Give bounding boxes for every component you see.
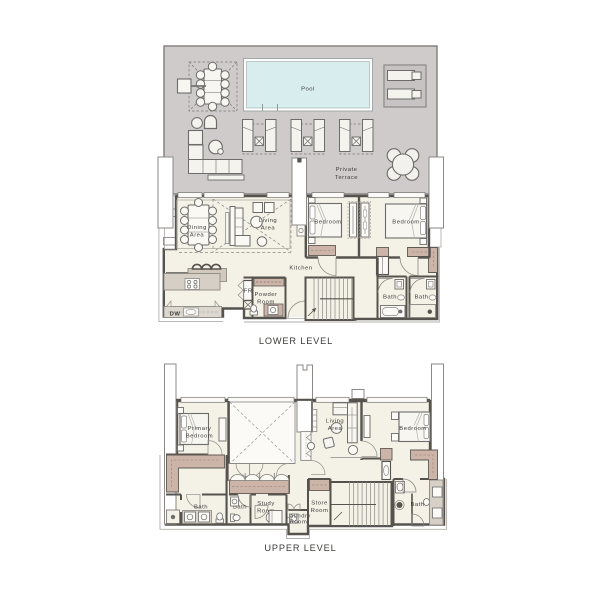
svg-text:Powder: Powder — [255, 292, 278, 298]
svg-text:Bedroom: Bedroom — [399, 426, 426, 432]
svg-text:UPPER LEVEL: UPPER LEVEL — [264, 543, 336, 553]
svg-text:Living: Living — [326, 419, 344, 425]
svg-text:Bath: Bath — [410, 502, 424, 508]
svg-text:Room: Room — [311, 508, 329, 514]
svg-text:Bedroom: Bedroom — [314, 220, 341, 226]
svg-text:Primary: Primary — [188, 426, 212, 432]
svg-text:Bath: Bath — [414, 295, 428, 301]
svg-text:Pool: Pool — [301, 87, 315, 93]
svg-text:FR: FR — [244, 289, 253, 295]
svg-text:Bedroom: Bedroom — [186, 434, 213, 440]
svg-text:Kitchen: Kitchen — [289, 266, 312, 272]
svg-text:DW: DW — [170, 312, 181, 318]
svg-text:Area: Area — [328, 426, 343, 432]
svg-text:Private: Private — [336, 167, 358, 173]
svg-text:Bedroom: Bedroom — [392, 220, 419, 226]
svg-text:Bath: Bath — [194, 505, 208, 511]
svg-text:Terrace: Terrace — [335, 175, 358, 181]
svg-text:Bath: Bath — [383, 295, 397, 301]
svg-text:Area: Area — [190, 233, 205, 239]
svg-text:Room: Room — [290, 520, 308, 526]
svg-text:LOWER LEVEL: LOWER LEVEL — [259, 336, 333, 346]
svg-text:Living: Living — [259, 218, 277, 224]
svg-text:Dining: Dining — [187, 225, 207, 231]
svg-text:Study: Study — [257, 501, 275, 507]
svg-text:Store: Store — [311, 501, 328, 507]
svg-text:Area: Area — [261, 226, 276, 232]
